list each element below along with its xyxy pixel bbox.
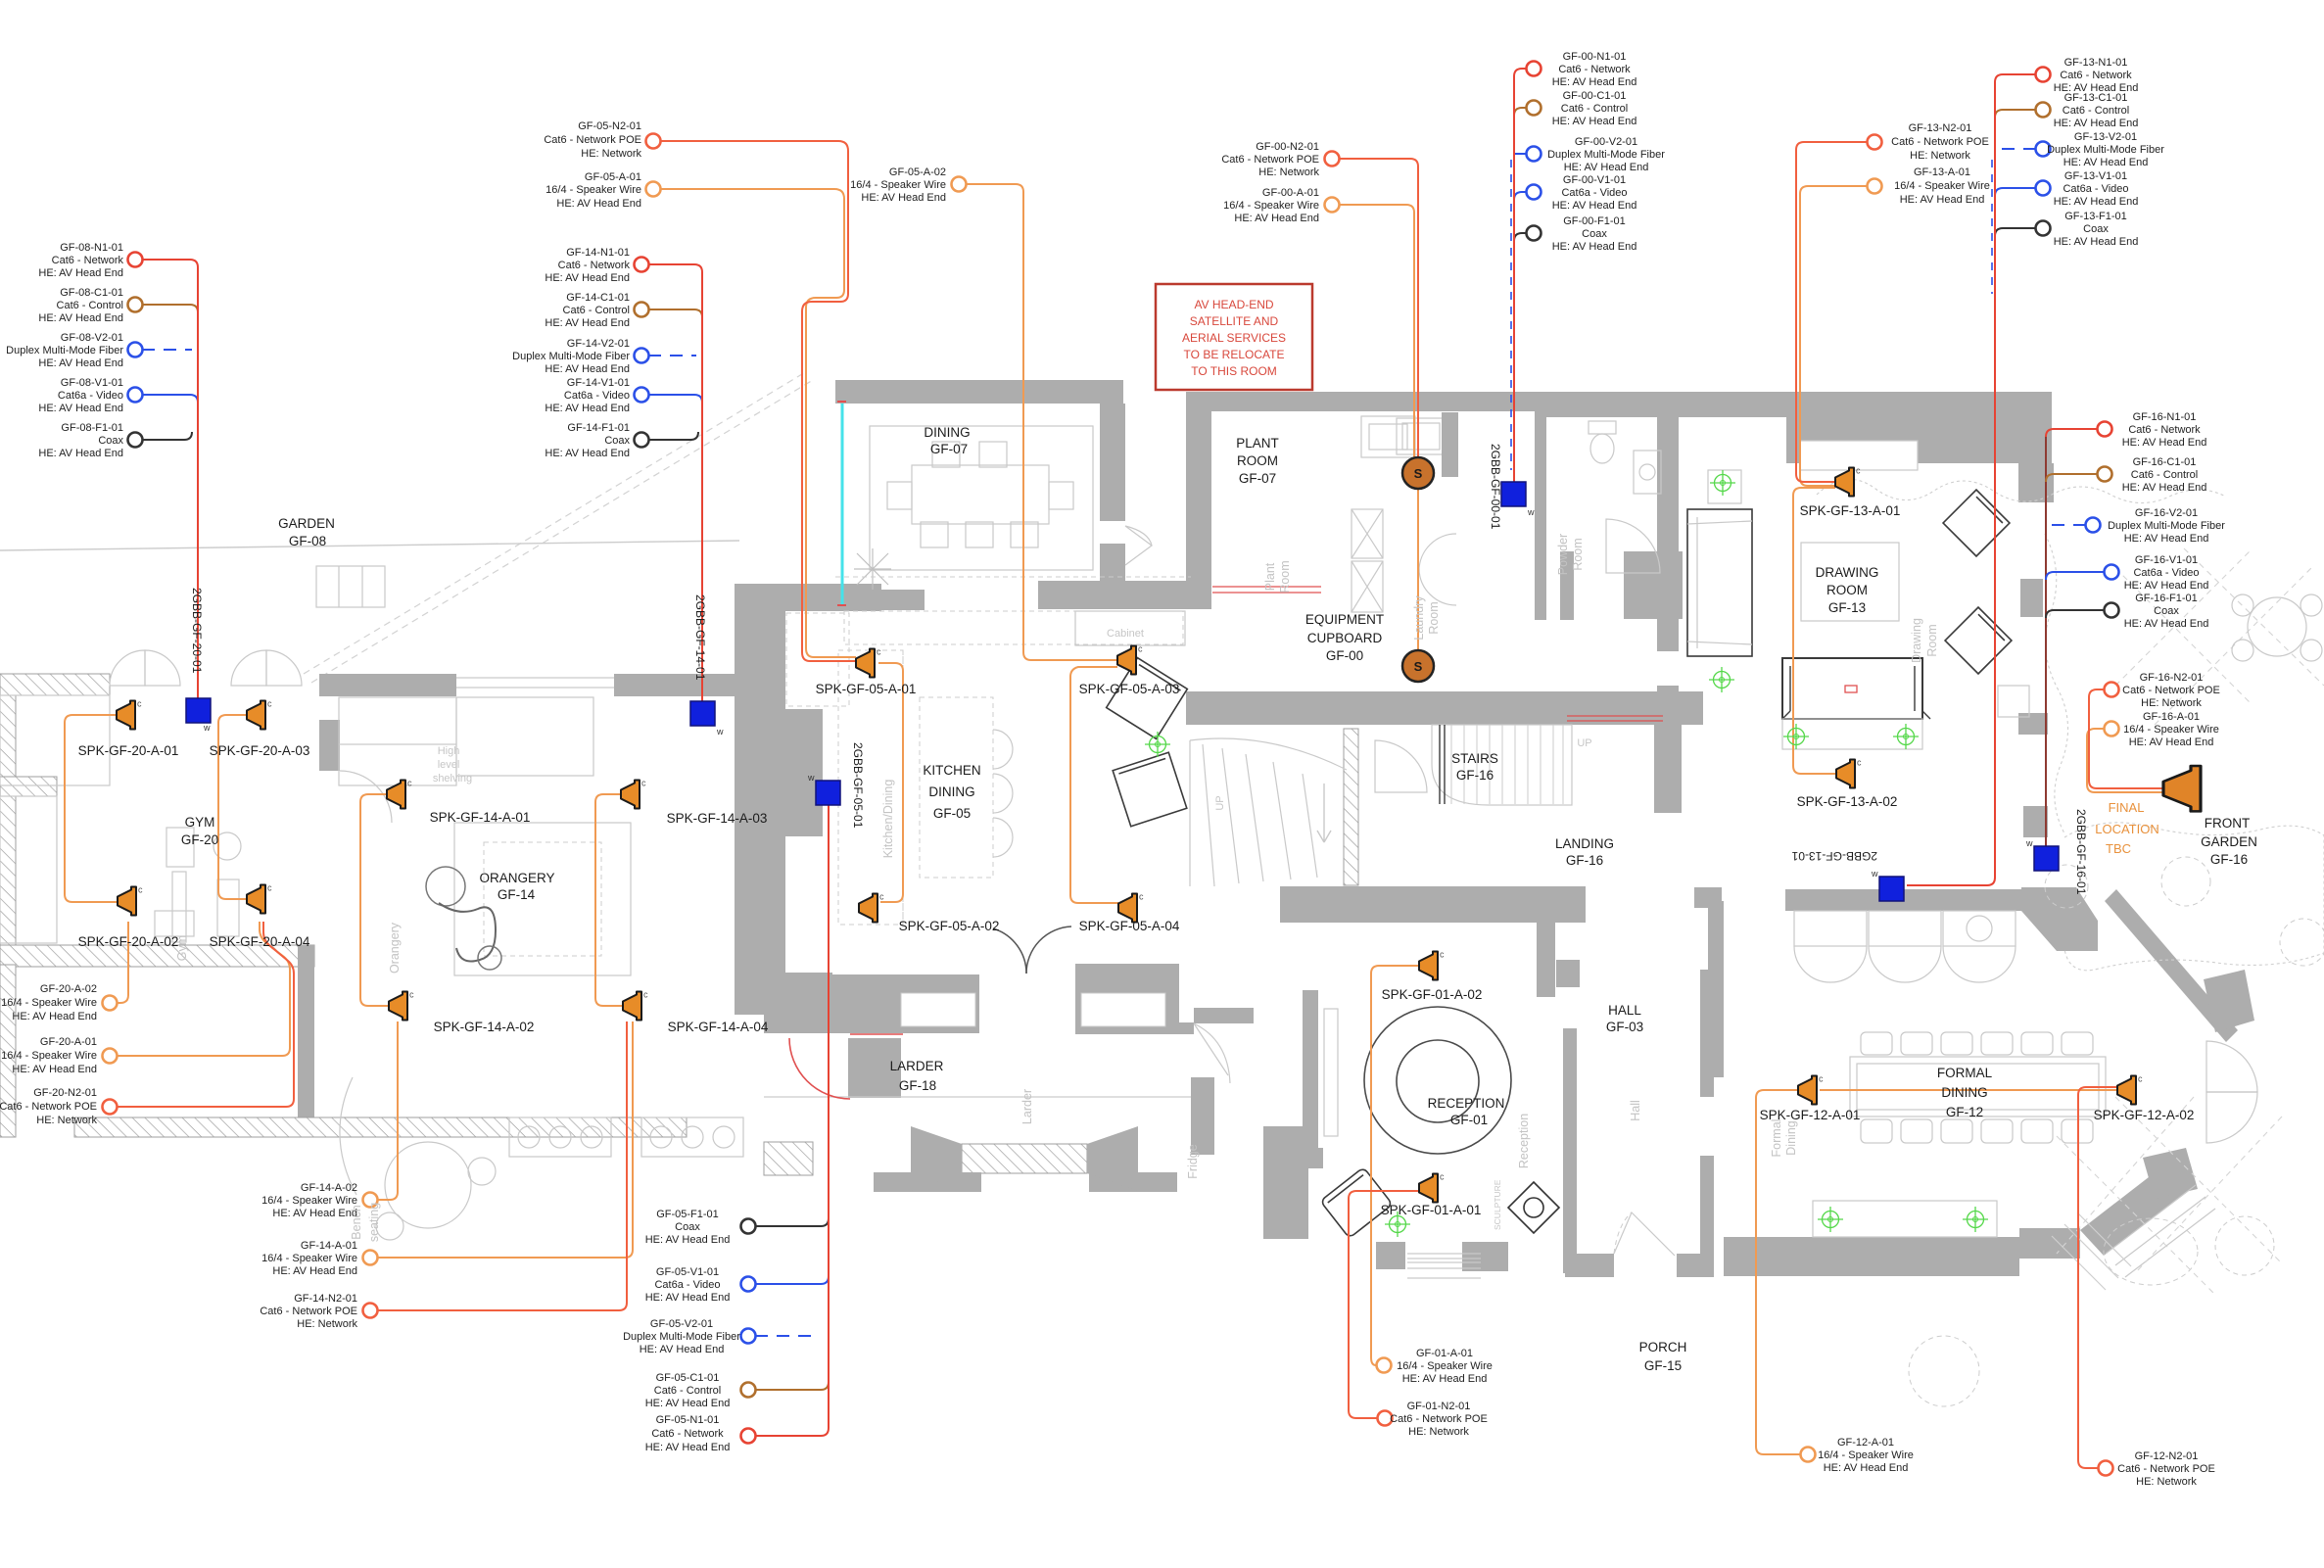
svg-text:Cat6 - Network POE: Cat6 - Network POE	[2117, 1463, 2215, 1475]
svg-text:GF-16-N2-01: GF-16-N2-01	[2140, 672, 2204, 684]
svg-text:Cat6 - Network: Cat6 - Network	[2060, 70, 2132, 81]
svg-text:Room: Room	[1278, 560, 1292, 593]
svg-text:DINING: DINING	[928, 784, 974, 799]
svg-text:High: High	[438, 745, 460, 757]
svg-text:SPK-GF-13-A-02: SPK-GF-13-A-02	[1797, 794, 1898, 809]
svg-text:w: w	[203, 723, 211, 733]
svg-text:16/4 - Speaker Wire: 16/4 - Speaker Wire	[261, 1253, 357, 1264]
svg-text:HE: Network: HE: Network	[2141, 697, 2202, 709]
svg-text:16/4 - Speaker Wire: 16/4 - Speaker Wire	[2123, 724, 2219, 736]
svg-text:Cat6 - Network: Cat6 - Network	[2128, 424, 2201, 436]
svg-text:HE: AV Head End: HE: AV Head End	[1824, 1462, 1909, 1474]
svg-text:16/4 - Speaker Wire: 16/4 - Speaker Wire	[1818, 1449, 1914, 1461]
svg-text:GF-05-V2-01: GF-05-V2-01	[650, 1318, 713, 1330]
svg-text:HE: AV Head End: HE: AV Head End	[861, 192, 946, 204]
svg-text:HALL: HALL	[1608, 1003, 1641, 1018]
svg-text:GF-16-F1-01: GF-16-F1-01	[2135, 593, 2198, 604]
svg-text:w: w	[807, 773, 815, 783]
svg-text:HE: Network: HE: Network	[1258, 166, 1319, 178]
svg-text:GF-15: GF-15	[1644, 1358, 1682, 1373]
svg-text:SPK-GF-14-A-03: SPK-GF-14-A-03	[667, 811, 768, 826]
svg-text:LARDER: LARDER	[890, 1059, 944, 1073]
svg-text:STAIRS: STAIRS	[1451, 751, 1498, 766]
svg-text:SPK-GF-05-A-04: SPK-GF-05-A-04	[1079, 919, 1180, 933]
svg-text:SPK-GF-14-A-02: SPK-GF-14-A-02	[434, 1020, 535, 1034]
svg-text:SPK-GF-05-A-01: SPK-GF-05-A-01	[816, 682, 917, 696]
svg-text:HE: AV Head End: HE: AV Head End	[640, 1344, 725, 1355]
svg-text:2GBB-GF-14-01: 2GBB-GF-14-01	[693, 594, 707, 681]
svg-text:SATELLITE AND: SATELLITE AND	[1190, 314, 1279, 328]
svg-text:GF-08-C1-01: GF-08-C1-01	[60, 287, 123, 299]
svg-text:GF-14-V1-01: GF-14-V1-01	[567, 377, 630, 389]
svg-text:GF-05-V1-01: GF-05-V1-01	[656, 1266, 719, 1278]
svg-text:ROOM: ROOM	[1237, 453, 1278, 468]
svg-text:TO THIS ROOM: TO THIS ROOM	[1191, 364, 1277, 378]
svg-text:GF-05-A-02: GF-05-A-02	[889, 166, 946, 178]
svg-text:RECEPTION: RECEPTION	[1428, 1096, 1505, 1111]
svg-text:Cat6a - Video: Cat6a - Video	[2063, 183, 2128, 195]
svg-text:GF-16: GF-16	[1456, 768, 1494, 783]
svg-text:LOCATION: LOCATION	[2095, 822, 2159, 836]
svg-text:Cat6 - Network: Cat6 - Network	[52, 255, 124, 266]
svg-text:GF-12-A-01: GF-12-A-01	[1837, 1437, 1894, 1449]
svg-text:HE: AV Head End: HE: AV Head End	[2054, 118, 2139, 129]
svg-text:SCULPTURE: SCULPTURE	[1493, 1179, 1502, 1230]
svg-text:AV HEAD-END: AV HEAD-END	[1194, 298, 1273, 311]
svg-text:GF-00-V2-01: GF-00-V2-01	[1575, 136, 1637, 148]
svg-text:GF-08-V2-01: GF-08-V2-01	[61, 332, 123, 344]
svg-text:SPK-GF-14-A-04: SPK-GF-14-A-04	[668, 1020, 769, 1034]
svg-text:16/4 - Speaker Wire: 16/4 - Speaker Wire	[1894, 180, 1990, 192]
svg-text:Drawing: Drawing	[1910, 618, 1923, 663]
svg-text:GF-12: GF-12	[1946, 1105, 1983, 1119]
svg-text:HE: Network: HE: Network	[1910, 150, 1970, 162]
svg-text:HE: AV Head End: HE: AV Head End	[2054, 236, 2139, 248]
svg-text:GF-14-F1-01: GF-14-F1-01	[567, 422, 630, 434]
svg-text:SPK-GF-14-A-01: SPK-GF-14-A-01	[430, 810, 531, 825]
svg-text:HE: AV Head End: HE: AV Head End	[1564, 162, 1649, 173]
svg-text:Powder: Powder	[1556, 534, 1570, 575]
svg-text:HE: AV Head End: HE: AV Head End	[645, 1234, 731, 1246]
svg-text:seating: seating	[367, 1203, 381, 1242]
svg-text:Orangery: Orangery	[388, 922, 402, 974]
svg-text:HE: AV Head End: HE: AV Head End	[12, 1064, 97, 1075]
svg-text:Cat6 - Network POE: Cat6 - Network POE	[260, 1306, 357, 1317]
svg-text:PORCH: PORCH	[1639, 1340, 1687, 1354]
svg-text:GF-14-N2-01: GF-14-N2-01	[294, 1293, 357, 1305]
svg-text:GF-03: GF-03	[1606, 1020, 1643, 1034]
svg-text:HE: AV Head End: HE: AV Head End	[38, 403, 123, 414]
svg-text:AERIAL SERVICES: AERIAL SERVICES	[1182, 331, 1286, 345]
svg-text:Laundry: Laundry	[1412, 595, 1426, 641]
svg-text:Cat6 - Control: Cat6 - Control	[1561, 103, 1628, 115]
svg-text:GF-13: GF-13	[1828, 600, 1866, 615]
svg-text:GF-14-V2-01: GF-14-V2-01	[567, 338, 630, 350]
svg-text:GF-16: GF-16	[1566, 853, 1603, 868]
svg-text:GF-05: GF-05	[933, 806, 971, 821]
svg-text:Cat6a - Video: Cat6a - Video	[654, 1279, 720, 1291]
svg-text:Duplex Multi-Mode Fiber: Duplex Multi-Mode Fiber	[623, 1331, 740, 1343]
svg-text:Duplex Multi-Mode Fiber: Duplex Multi-Mode Fiber	[512, 351, 630, 362]
svg-text:Cat6 - Network POE: Cat6 - Network POE	[0, 1101, 97, 1113]
svg-text:GF-08-N1-01: GF-08-N1-01	[60, 242, 123, 254]
svg-text:HE: AV Head End: HE: AV Head End	[38, 357, 123, 369]
svg-text:DINING: DINING	[924, 425, 970, 440]
svg-text:HE: Network: HE: Network	[2136, 1476, 2197, 1488]
svg-text:GF-08: GF-08	[289, 534, 326, 548]
svg-text:GF-05-F1-01: GF-05-F1-01	[656, 1209, 719, 1220]
svg-text:HE: AV Head End: HE: AV Head End	[1402, 1373, 1488, 1385]
svg-text:PLANT: PLANT	[1236, 436, 1279, 451]
svg-text:GF-00-V1-01: GF-00-V1-01	[1563, 174, 1626, 186]
svg-text:GF-05-N2-01: GF-05-N2-01	[578, 120, 641, 132]
svg-text:Coax: Coax	[98, 435, 123, 447]
svg-text:GF-14: GF-14	[498, 887, 536, 902]
svg-text:Cat6 - Control: Cat6 - Control	[563, 305, 630, 316]
svg-text:2GBB-GF-05-01: 2GBB-GF-05-01	[851, 742, 865, 829]
svg-text:Coax: Coax	[2154, 605, 2179, 617]
svg-text:GF-12-N2-01: GF-12-N2-01	[2135, 1450, 2199, 1462]
svg-text:GF-00: GF-00	[1326, 648, 1363, 663]
svg-text:UP: UP	[1577, 737, 1591, 749]
svg-text:HE: AV Head End: HE: AV Head End	[545, 317, 630, 329]
svg-text:w: w	[2025, 838, 2033, 848]
svg-text:HE: AV Head End: HE: AV Head End	[272, 1265, 357, 1277]
svg-text:Larder: Larder	[1020, 1089, 1034, 1124]
svg-text:level: level	[438, 759, 460, 771]
svg-text:FRONT: FRONT	[2205, 816, 2251, 831]
svg-text:GF-16-N1-01: GF-16-N1-01	[2133, 411, 2197, 423]
svg-text:HE: AV Head End: HE: AV Head End	[556, 198, 641, 210]
svg-text:HE: AV Head End: HE: AV Head End	[545, 272, 630, 284]
svg-text:SPK-GF-20-A-04: SPK-GF-20-A-04	[210, 934, 310, 949]
svg-text:LANDING: LANDING	[1555, 836, 1614, 851]
svg-text:GF-20: GF-20	[181, 832, 218, 847]
svg-text:HE: AV Head End: HE: AV Head End	[38, 448, 123, 459]
svg-text:GF-01-N2-01: GF-01-N2-01	[1407, 1401, 1471, 1412]
svg-text:2GBB-GF-20-01: 2GBB-GF-20-01	[190, 588, 204, 674]
svg-text:Cat6a - Video: Cat6a - Video	[564, 390, 630, 402]
svg-text:HE: AV Head End: HE: AV Head End	[1234, 213, 1319, 224]
svg-text:GYM: GYM	[185, 815, 215, 830]
svg-text:GF-20-A-01: GF-20-A-01	[40, 1036, 97, 1048]
svg-text:GF-00-C1-01: GF-00-C1-01	[1563, 90, 1627, 102]
svg-text:HE: AV Head End: HE: AV Head End	[2124, 618, 2209, 630]
svg-text:Cat6 - Control: Cat6 - Control	[57, 300, 123, 311]
svg-text:GF-13-V1-01: GF-13-V1-01	[2064, 170, 2127, 182]
svg-text:GF-00-N2-01: GF-00-N2-01	[1256, 141, 1319, 153]
svg-text:GF-13-N1-01: GF-13-N1-01	[2064, 57, 2128, 69]
svg-text:SPK-GF-20-A-02: SPK-GF-20-A-02	[78, 934, 179, 949]
svg-text:GF-08-V1-01: GF-08-V1-01	[61, 377, 123, 389]
svg-text:2GBB-GF-00-01: 2GBB-GF-00-01	[1489, 444, 1502, 530]
svg-text:HE: AV Head End: HE: AV Head End	[645, 1442, 731, 1453]
svg-text:EQUIPMENT: EQUIPMENT	[1305, 612, 1384, 627]
svg-text:GF-14-C1-01: GF-14-C1-01	[566, 292, 630, 304]
svg-text:Hall: Hall	[1629, 1100, 1642, 1121]
svg-text:GARDEN: GARDEN	[278, 516, 335, 531]
svg-text:Fridge: Fridge	[1186, 1144, 1200, 1178]
svg-text:Plant: Plant	[1263, 562, 1277, 591]
svg-text:Coax: Coax	[604, 435, 630, 447]
svg-text:Cat6 - Network POE: Cat6 - Network POE	[544, 134, 641, 146]
svg-text:16/4 - Speaker Wire: 16/4 - Speaker Wire	[850, 179, 946, 191]
svg-text:GF-20-N2-01: GF-20-N2-01	[33, 1087, 97, 1099]
svg-text:TBC: TBC	[2106, 841, 2131, 856]
svg-text:Cat6 - Network POE: Cat6 - Network POE	[1891, 136, 1989, 148]
svg-text:Duplex Multi-Mode Fiber: Duplex Multi-Mode Fiber	[2047, 144, 2164, 156]
svg-text:SPK-GF-20-A-01: SPK-GF-20-A-01	[78, 743, 179, 758]
svg-text:HE: AV Head End: HE: AV Head End	[545, 403, 630, 414]
svg-text:Duplex Multi-Mode Fiber: Duplex Multi-Mode Fiber	[6, 345, 123, 356]
svg-text:GF-14-A-01: GF-14-A-01	[301, 1240, 357, 1252]
svg-text:UP: UP	[1214, 795, 1226, 810]
svg-text:2GBB-GF-16-01: 2GBB-GF-16-01	[2074, 809, 2088, 895]
svg-text:Dining: Dining	[1784, 1120, 1798, 1155]
svg-text:GF-07: GF-07	[1239, 471, 1276, 486]
svg-text:GF-14-A-02: GF-14-A-02	[301, 1182, 357, 1194]
svg-text:GF-13-F1-01: GF-13-F1-01	[2064, 211, 2127, 222]
svg-text:Cat6 - Network: Cat6 - Network	[558, 260, 631, 271]
svg-text:16/4 - Speaker Wire: 16/4 - Speaker Wire	[545, 184, 641, 196]
svg-text:Cat6 - Network POE: Cat6 - Network POE	[1390, 1413, 1488, 1425]
svg-text:HE: AV Head End: HE: AV Head End	[545, 363, 630, 375]
svg-text:GF-20-A-02: GF-20-A-02	[40, 983, 97, 995]
svg-text:HE: AV Head End: HE: AV Head End	[12, 1011, 97, 1022]
svg-text:Kitchen/Dining: Kitchen/Dining	[881, 780, 895, 859]
svg-text:Cat6a - Video: Cat6a - Video	[1561, 187, 1627, 199]
svg-text:DRAWING: DRAWING	[1816, 565, 1879, 580]
svg-text:GF-16-C1-01: GF-16-C1-01	[2133, 456, 2197, 468]
svg-text:FINAL: FINAL	[2109, 800, 2145, 815]
svg-text:shelving: shelving	[433, 773, 472, 784]
svg-text:16/4 - Speaker Wire: 16/4 - Speaker Wire	[1397, 1360, 1493, 1372]
svg-text:Duplex Multi-Mode Fiber: Duplex Multi-Mode Fiber	[1547, 149, 1665, 161]
svg-text:Room: Room	[1571, 538, 1585, 570]
svg-text:HE: AV Head End: HE: AV Head End	[1900, 194, 1985, 206]
svg-text:HE: Network: HE: Network	[297, 1318, 357, 1330]
svg-text:HE: AV Head End: HE: AV Head End	[2054, 196, 2139, 208]
svg-text:Bench: Bench	[350, 1205, 363, 1239]
svg-text:HE: AV Head End: HE: AV Head End	[645, 1292, 731, 1304]
svg-text:GF-16: GF-16	[2210, 852, 2248, 867]
svg-text:FORMAL: FORMAL	[1937, 1066, 1993, 1080]
svg-text:SPK-GF-12-A-02: SPK-GF-12-A-02	[2094, 1108, 2195, 1122]
svg-text:GF-00-A-01: GF-00-A-01	[1262, 187, 1319, 199]
svg-text:GF-16-V2-01: GF-16-V2-01	[2135, 507, 2198, 519]
svg-text:w: w	[716, 727, 724, 736]
svg-text:GF-05-N1-01: GF-05-N1-01	[656, 1414, 720, 1426]
svg-text:GF-13-N2-01: GF-13-N2-01	[1909, 122, 1972, 134]
svg-text:TO BE RELOCATE: TO BE RELOCATE	[1184, 348, 1285, 361]
svg-text:CUPBOARD: CUPBOARD	[1307, 631, 1383, 645]
svg-text:Room: Room	[1925, 624, 1939, 656]
svg-text:Cabinet: Cabinet	[1107, 628, 1144, 640]
svg-text:HE: AV Head End: HE: AV Head End	[2124, 533, 2209, 545]
svg-text:Cat6a - Video: Cat6a - Video	[58, 390, 123, 402]
svg-text:GF-13-A-01: GF-13-A-01	[1914, 166, 1970, 178]
svg-text:Cat6 - Network POE: Cat6 - Network POE	[2122, 685, 2220, 696]
svg-text:GF-16-V1-01: GF-16-V1-01	[2135, 554, 2198, 566]
svg-text:Cat6a - Video: Cat6a - Video	[2133, 567, 2199, 579]
svg-text:SPK-GF-01-A-02: SPK-GF-01-A-02	[1382, 987, 1483, 1002]
svg-text:HE: Network: HE: Network	[581, 148, 641, 160]
svg-text:Coax: Coax	[2083, 223, 2109, 235]
svg-text:GF-08-F1-01: GF-08-F1-01	[61, 422, 123, 434]
svg-text:16/4 - Speaker Wire: 16/4 - Speaker Wire	[261, 1195, 357, 1207]
svg-text:w: w	[1527, 507, 1535, 517]
svg-text:16/4 - Speaker Wire: 16/4 - Speaker Wire	[1223, 200, 1319, 212]
svg-text:HE: AV Head End: HE: AV Head End	[38, 312, 123, 324]
svg-text:Coax: Coax	[1582, 228, 1607, 240]
svg-text:Cat6 - Control: Cat6 - Control	[2131, 469, 2198, 481]
svg-text:HE: Network: HE: Network	[1408, 1426, 1469, 1438]
svg-text:HE: AV Head End: HE: AV Head End	[1552, 116, 1637, 127]
svg-text:HE: Network: HE: Network	[36, 1115, 97, 1126]
svg-text:GF-01-A-01: GF-01-A-01	[1416, 1348, 1473, 1359]
svg-text:Cat6 - Network: Cat6 - Network	[1558, 64, 1631, 75]
svg-text:HE: AV Head End: HE: AV Head End	[2124, 580, 2209, 592]
svg-text:SPK-GF-20-A-03: SPK-GF-20-A-03	[210, 743, 310, 758]
svg-text:HE: AV Head End: HE: AV Head End	[272, 1208, 357, 1219]
svg-text:w: w	[1871, 869, 1878, 879]
svg-text:GF-13-C1-01: GF-13-C1-01	[2064, 92, 2128, 104]
svg-text:HE: AV Head End: HE: AV Head End	[2122, 437, 2207, 449]
svg-text:HE: AV Head End: HE: AV Head End	[1552, 241, 1637, 253]
svg-text:Cat6 - Control: Cat6 - Control	[654, 1385, 721, 1397]
svg-text:HE: AV Head End: HE: AV Head End	[2129, 736, 2214, 748]
svg-text:GF-00-N1-01: GF-00-N1-01	[1563, 51, 1627, 63]
svg-text:DINING: DINING	[1941, 1085, 1987, 1100]
svg-text:GF-00-F1-01: GF-00-F1-01	[1563, 215, 1626, 227]
svg-text:HE: AV Head End: HE: AV Head End	[1552, 200, 1637, 212]
svg-text:GF-13-V2-01: GF-13-V2-01	[2074, 131, 2137, 143]
svg-text:ROOM: ROOM	[1826, 583, 1868, 597]
svg-text:Duplex Multi-Mode Fiber: Duplex Multi-Mode Fiber	[2108, 520, 2225, 532]
svg-text:HE: AV Head End: HE: AV Head End	[2122, 482, 2207, 494]
svg-text:Reception: Reception	[1517, 1114, 1531, 1168]
svg-text:KITCHEN: KITCHEN	[923, 763, 980, 778]
svg-text:Coax: Coax	[675, 1221, 700, 1233]
svg-text:Formal: Formal	[1770, 1119, 1783, 1158]
svg-text:2GBB-GF-13-01: 2GBB-GF-13-01	[1791, 849, 1877, 863]
svg-text:SPK-GF-05-A-02: SPK-GF-05-A-02	[899, 919, 1000, 933]
svg-text:GF-18: GF-18	[899, 1078, 936, 1093]
svg-text:Cat6 - Control: Cat6 - Control	[2063, 105, 2129, 117]
svg-text:Cat6 - Network: Cat6 - Network	[651, 1428, 724, 1440]
svg-text:HE: AV Head End: HE: AV Head End	[2063, 157, 2149, 168]
svg-text:HE: AV Head End: HE: AV Head End	[645, 1398, 731, 1409]
svg-text:GF-07: GF-07	[930, 442, 968, 456]
svg-text:16/4 - Speaker Wire: 16/4 - Speaker Wire	[1, 1050, 97, 1062]
svg-text:GF-16-A-01: GF-16-A-01	[2143, 711, 2200, 723]
svg-text:Cat6 - Network POE: Cat6 - Network POE	[1221, 154, 1319, 166]
svg-text:SPK-GF-01-A-01: SPK-GF-01-A-01	[1381, 1203, 1482, 1217]
svg-text:GF-14-N1-01: GF-14-N1-01	[566, 247, 630, 259]
svg-text:GARDEN: GARDEN	[2201, 834, 2257, 849]
svg-text:Gym: Gym	[175, 935, 189, 961]
svg-text:GF-05-C1-01: GF-05-C1-01	[656, 1372, 720, 1384]
svg-text:SPK-GF-13-A-01: SPK-GF-13-A-01	[1800, 503, 1901, 518]
svg-text:HE: AV Head End: HE: AV Head End	[1552, 76, 1637, 88]
svg-text:GF-05-A-01: GF-05-A-01	[585, 171, 641, 183]
svg-text:SPK-GF-05-A-03: SPK-GF-05-A-03	[1079, 682, 1180, 696]
svg-text:HE: AV Head End: HE: AV Head End	[545, 448, 630, 459]
svg-text:16/4 - Speaker Wire: 16/4 - Speaker Wire	[1, 997, 97, 1009]
svg-text:HE: AV Head End: HE: AV Head End	[38, 267, 123, 279]
svg-text:Room: Room	[1427, 601, 1441, 634]
svg-text:GF-01: GF-01	[1450, 1113, 1488, 1127]
svg-text:ORANGERY: ORANGERY	[479, 871, 554, 885]
